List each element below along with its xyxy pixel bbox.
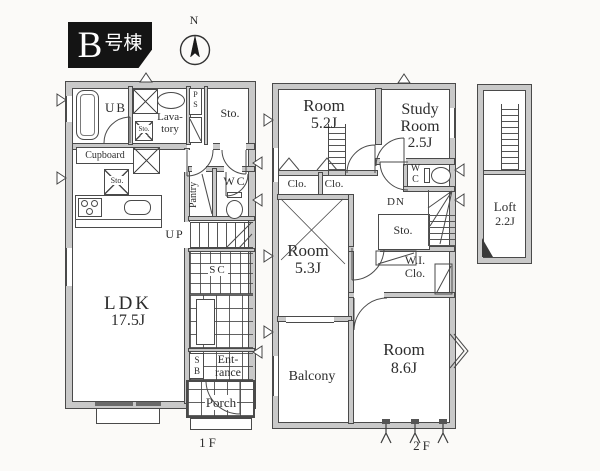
room-size-5-2: 5.2J [300, 115, 348, 133]
wall [212, 168, 217, 218]
toilet-tank-2f [424, 168, 430, 183]
window [286, 316, 334, 323]
porch-step [190, 418, 252, 430]
room-label-entrance: Ent- rance [206, 353, 250, 380]
room-size-ldk: 17.5J [95, 312, 161, 330]
staircase-down [429, 212, 455, 246]
room-label-lavatory: Lava- tory [151, 111, 189, 136]
wall [403, 186, 455, 192]
room-label-5-2: Room [296, 96, 352, 115]
wall [483, 170, 526, 175]
wall [188, 216, 255, 221]
room-label-storage-2f: Sto. [384, 224, 422, 237]
label-stairs-down: DN [383, 196, 409, 208]
room-label-porch: Porch [200, 396, 242, 411]
loft-ladder [501, 104, 519, 170]
building-suffix: 号棟 [104, 28, 142, 63]
room-label-loft: Loft [487, 200, 523, 215]
room-size-study: 2.5J [398, 135, 442, 152]
bathtub [76, 90, 99, 140]
window [273, 148, 279, 182]
floor1-caption: 1F [192, 436, 226, 451]
door-opening [224, 166, 242, 172]
wall [348, 194, 354, 324]
compass-north-label: N [186, 14, 202, 27]
room-label-storage-1f: Sto. [214, 107, 246, 120]
building-letter: B [78, 27, 103, 64]
compass-icon [176, 28, 214, 68]
room-label-wic: W.I. Clo. [394, 254, 436, 281]
label-storage-small: Sto. [106, 177, 128, 186]
building-badge: B 号棟 [68, 22, 152, 68]
window-sash [95, 402, 133, 406]
room-label-study-2: Room [392, 118, 448, 136]
shoe-counter [196, 299, 215, 345]
label-stairs-up: UP [162, 228, 188, 241]
room-label-ps: P S [190, 90, 201, 109]
door-opening [354, 292, 384, 298]
kitchen-sink [124, 200, 151, 215]
window [273, 356, 279, 396]
room-label-5-3: Room [280, 241, 336, 260]
floor2-caption: 2F [406, 439, 440, 454]
room-label-wc-2f: W C [409, 163, 422, 185]
room-label-study-1: Study [390, 101, 450, 119]
toilet-bowl-2f [431, 167, 451, 184]
door-opening [192, 166, 206, 172]
wall [348, 320, 354, 424]
stove-burner [81, 200, 88, 207]
room-size-loft: 2.2J [487, 215, 523, 228]
toilet-bowl [226, 200, 243, 219]
room-label-shoe-closet: SC [203, 264, 233, 276]
room-label-closet-left: Clo. [280, 178, 314, 190]
wall [277, 194, 354, 200]
lavatory-sink [157, 92, 185, 109]
stove-burner [86, 208, 93, 215]
terrace-step [96, 408, 160, 424]
door-opening [354, 246, 380, 252]
stove-burner [91, 200, 98, 207]
label-storage-tiny: Sto. [135, 126, 153, 134]
wall [204, 86, 208, 145]
window [66, 248, 73, 286]
room-label-wc-1f: WC [221, 175, 249, 188]
kitchen-closet [133, 147, 160, 174]
staircase-up [190, 222, 253, 248]
room-size-5-3: 5.3J [284, 260, 332, 278]
room-label-8-6: Room [376, 340, 432, 359]
counter-edge [75, 219, 162, 220]
door-opening [220, 143, 246, 150]
window [66, 96, 73, 122]
toilet-tank [227, 192, 242, 198]
window-sash [136, 402, 161, 406]
wall [375, 88, 382, 145]
label-cupboard: Cupboard [78, 150, 132, 161]
room-label-balcony: Balcony [283, 369, 341, 385]
room-label-ub: UB [100, 101, 132, 116]
label-shoe-box: S B [191, 355, 203, 377]
room-label-pantry: Pantry [188, 174, 201, 216]
duct-box [189, 117, 202, 143]
floorplan-sheet: B 号棟 N [0, 0, 600, 471]
room-size-8-6: 8.6J [380, 360, 428, 378]
room-label-closet-right: Clo. [319, 178, 349, 190]
